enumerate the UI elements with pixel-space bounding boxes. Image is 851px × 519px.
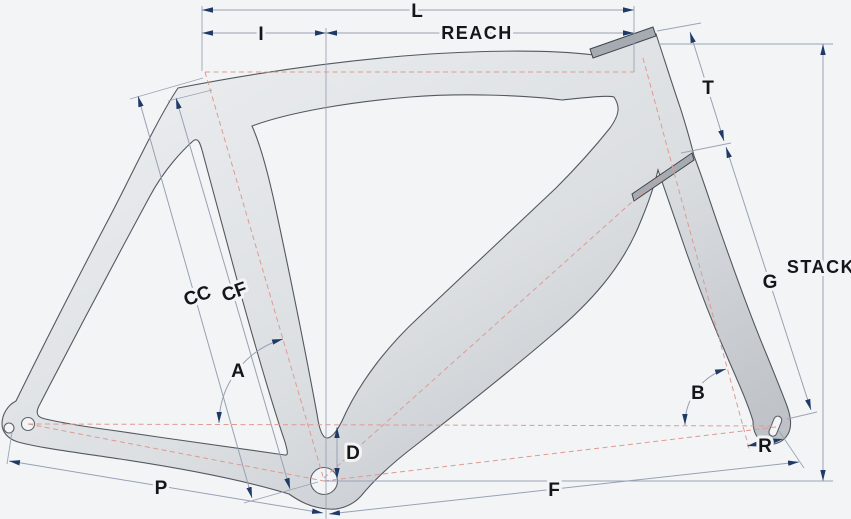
rear-dropout-slot (4, 423, 14, 433)
label-fork-G: G (763, 272, 778, 293)
label-stack: STACK (787, 257, 851, 277)
label-head-angle-B: B (691, 383, 705, 404)
seat-tube-axis (205, 72, 324, 480)
label-front-center-F: F (548, 480, 560, 501)
ext-fork-bottom (787, 412, 817, 419)
dim-line-F (329, 462, 799, 514)
ext-headtube-top (657, 23, 701, 31)
label-offset-I: I (258, 24, 263, 45)
label-reach: REACH (441, 23, 513, 43)
label-bb-drop-D: D (346, 443, 360, 464)
bike-frame (2, 27, 791, 509)
label-chainstay-P: P (155, 478, 168, 499)
label-seat-angle-A: A (231, 361, 245, 382)
geometry-svg: L I REACH T STACK G CC CF A B D R P F (0, 0, 851, 519)
frame-silhouette (2, 34, 791, 509)
label-top-tube-L: L (411, 1, 423, 22)
label-seat-tube-CC: CC (181, 282, 214, 311)
geometry-diagram: L I REACH T STACK G CC CF A B D R P F (0, 0, 851, 519)
label-fork-rake-R: R (758, 436, 772, 457)
label-head-tube-T: T (702, 78, 714, 99)
